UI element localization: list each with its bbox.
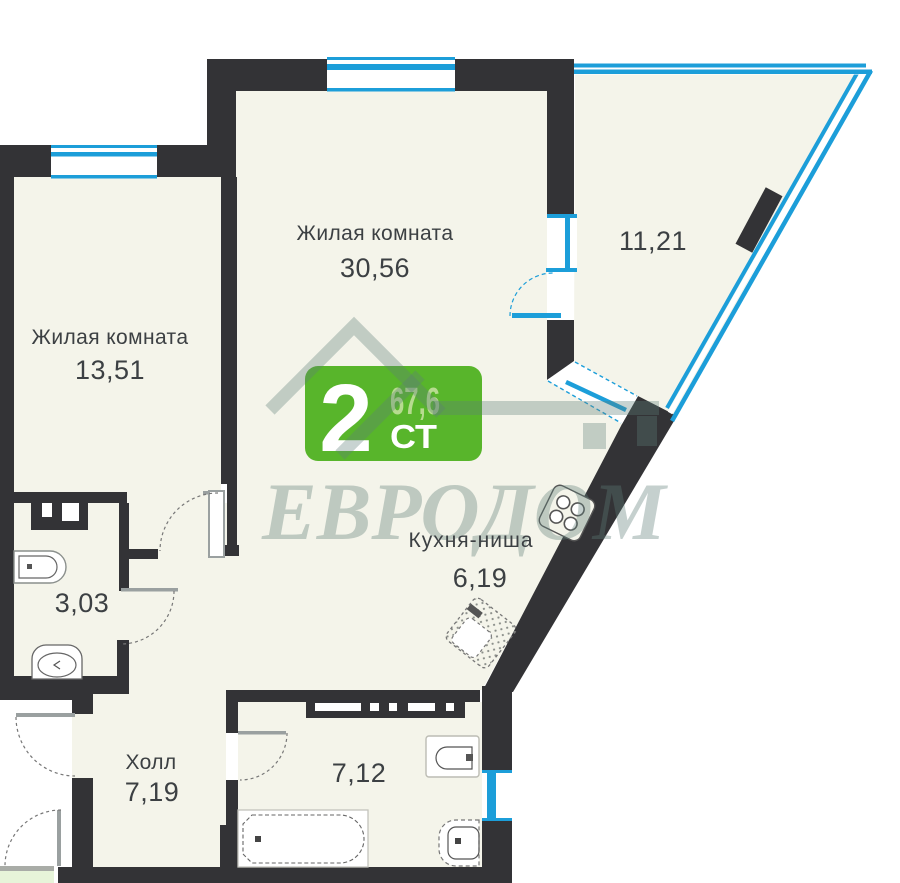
svg-text:13,51: 13,51	[75, 355, 145, 385]
svg-text:30,56: 30,56	[340, 253, 410, 283]
svg-text:Холл: Холл	[125, 751, 176, 774]
svg-text:7,12: 7,12	[332, 758, 387, 788]
svg-text:Жилая комната: Жилая комната	[32, 326, 189, 349]
svg-text:11,21: 11,21	[619, 226, 687, 256]
svg-text:Жилая комната: Жилая комната	[297, 222, 454, 245]
svg-text:7,19: 7,19	[125, 777, 180, 807]
svg-text:Кухня-ниша: Кухня-ниша	[408, 529, 533, 552]
svg-text:6,19: 6,19	[453, 563, 508, 593]
svg-text:СТ: СТ	[390, 418, 437, 455]
svg-text:3,03: 3,03	[55, 588, 110, 618]
